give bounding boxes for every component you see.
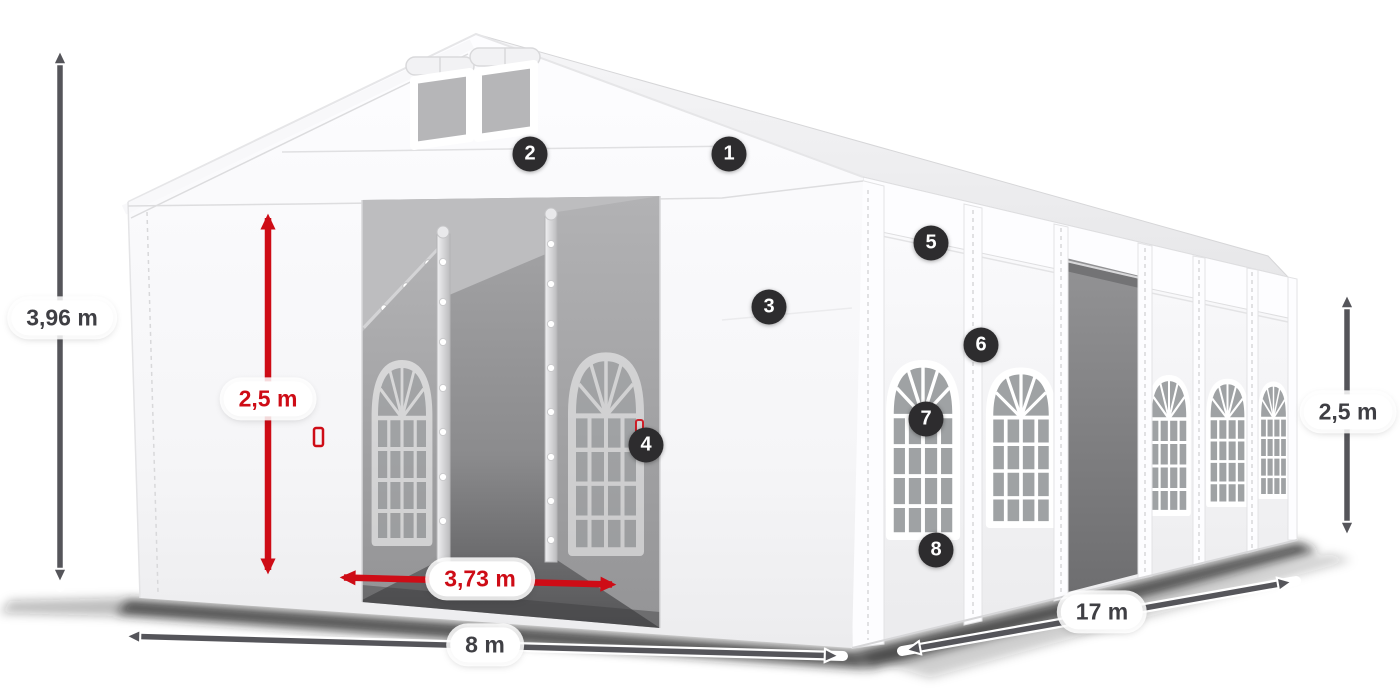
dimension-label-entrance-width: 3,73 m bbox=[429, 561, 531, 596]
callout-badge-4[interactable]: 4 bbox=[629, 428, 664, 463]
dimension-label-entrance-height: 2,5 m bbox=[224, 381, 313, 416]
dimension-label-front-width: 8 m bbox=[450, 627, 520, 662]
side-window bbox=[1149, 378, 1188, 513]
dimension-label-side-length: 17 m bbox=[1061, 594, 1143, 629]
roof-vent-right bbox=[470, 48, 540, 138]
side-window bbox=[1208, 382, 1246, 505]
side-entrance-opening bbox=[1064, 258, 1142, 592]
callout-badge-6[interactable]: 6 bbox=[964, 328, 999, 363]
callout-badge-3[interactable]: 3 bbox=[752, 290, 787, 325]
tent-dimension-diagram: 3,96 m 2,5 m 3,73 m 8 m 17 m 2,5 m 1 2 3… bbox=[0, 0, 1400, 700]
side-window bbox=[1259, 384, 1287, 496]
callout-badge-7[interactable]: 7 bbox=[909, 402, 944, 437]
door-pole bbox=[437, 226, 450, 562]
tent-illustration bbox=[0, 0, 1400, 700]
callout-badge-1[interactable]: 1 bbox=[712, 137, 747, 172]
roof-vent-left bbox=[406, 57, 474, 146]
door-window bbox=[375, 364, 429, 542]
callout-badge-8[interactable]: 8 bbox=[919, 533, 954, 568]
side-window bbox=[990, 371, 1053, 525]
callout-badge-2[interactable]: 2 bbox=[513, 137, 548, 172]
dimension-label-side-height: 2,5 m bbox=[1304, 394, 1393, 429]
door-window bbox=[572, 357, 640, 552]
dimension-label-total-height: 3,96 m bbox=[11, 300, 113, 335]
side-window bbox=[890, 364, 956, 536]
door-pole bbox=[545, 208, 557, 562]
callout-badge-5[interactable]: 5 bbox=[914, 226, 949, 261]
